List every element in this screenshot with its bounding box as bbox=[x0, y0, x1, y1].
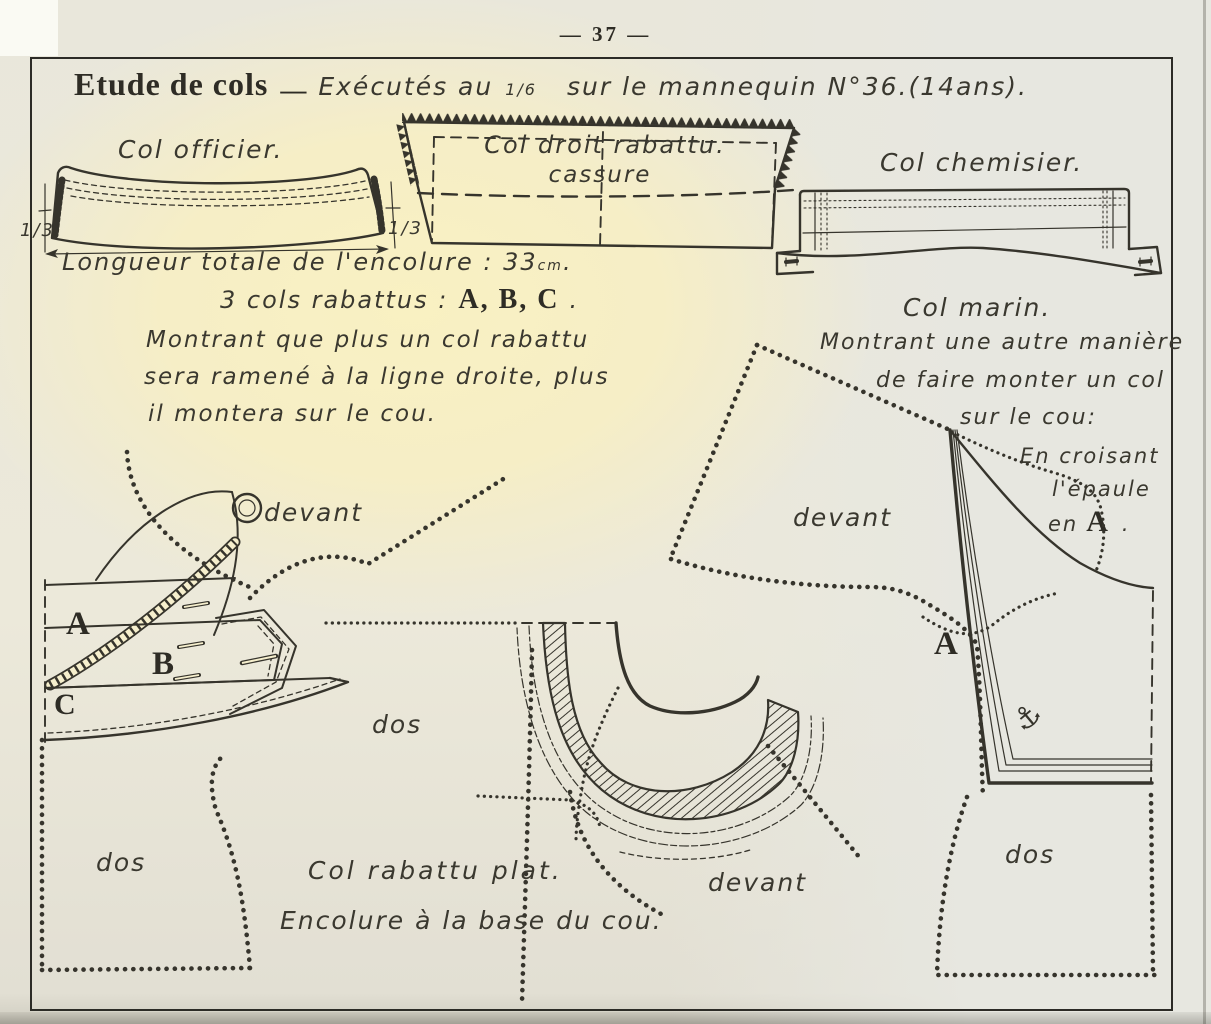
scan-edge-line bbox=[1203, 0, 1206, 1024]
marin-dos-label: dos bbox=[1005, 840, 1055, 869]
title-dash: — bbox=[280, 76, 306, 106]
abc-dos-label: dos bbox=[96, 848, 146, 877]
scanned-book-page: — 37 — Etude de cols — Exécutés au 1/6 s… bbox=[0, 0, 1211, 1024]
abc-body-line2: sera ramené à la ligne droite, plus bbox=[144, 364, 610, 390]
collar-point-piece bbox=[216, 610, 296, 714]
abc-devant-label: devant bbox=[264, 498, 363, 527]
page-corner-highlight bbox=[0, 0, 58, 56]
droit-caption: Col droit rabattu. bbox=[475, 131, 735, 159]
chemisier-collar-shape bbox=[777, 189, 1161, 275]
abc-heading-letters: A, B, C bbox=[458, 284, 559, 316]
flat-caption-line2: Encolure à la base du cou. bbox=[280, 906, 663, 935]
chemisier-caption: Col chemisier. bbox=[880, 148, 1083, 177]
flat-dos-label: dos bbox=[372, 710, 422, 739]
abc-body-line1: Montrant que plus un col rabattu bbox=[146, 327, 589, 353]
officier-measure-unit: cm bbox=[538, 258, 563, 274]
buttonhole-right bbox=[1140, 257, 1151, 266]
collar-a-label: A bbox=[66, 606, 90, 643]
page-subtitle: Exécutés au bbox=[318, 72, 493, 101]
marin-dos-dotted bbox=[937, 795, 1159, 975]
col-chemisier-diagram bbox=[773, 183, 1175, 293]
buttonholes bbox=[175, 603, 208, 679]
buttonhole-left bbox=[786, 257, 797, 266]
subtitle-fraction: 1/6 bbox=[505, 80, 537, 99]
abc-heading: 3 cols rabattus : A, B, C . bbox=[220, 284, 579, 316]
subtitle-rest: sur le mannequin N°36.(14ans). bbox=[567, 72, 1028, 101]
page-title: Etude de cols bbox=[74, 66, 268, 103]
sailor-collar-diagram bbox=[665, 335, 1175, 1010]
collar-c-label: C bbox=[54, 688, 76, 722]
collar-b-label: B bbox=[152, 646, 174, 683]
flat-caption-line1: Col rabattu plat. bbox=[308, 856, 563, 885]
marin-collar-lines bbox=[950, 430, 1153, 783]
page-number: — 37 — bbox=[560, 22, 652, 47]
abc-body-line3: il montera sur le cou. bbox=[148, 401, 437, 427]
officier-fraction-left: 1/3 bbox=[20, 220, 55, 241]
marin-guide-dotted bbox=[923, 432, 1104, 634]
abc-heading-hand: 3 cols rabattus : bbox=[220, 286, 448, 314]
droit-cassure-label: cassure bbox=[545, 162, 655, 188]
page-title-row: Etude de cols — Exécutés au 1/6 sur le m… bbox=[74, 66, 1028, 103]
officier-collar-shape bbox=[52, 167, 383, 249]
abc-heading-period: . bbox=[569, 286, 579, 314]
collar-a-swoop bbox=[96, 491, 261, 635]
marin-a-label: A bbox=[934, 626, 958, 663]
officier-measure-marks bbox=[39, 182, 400, 258]
marin-devant-label: devant bbox=[793, 503, 892, 532]
marin-heading: Col marin. bbox=[903, 293, 1051, 322]
marin-devant-dotted bbox=[671, 345, 983, 797]
